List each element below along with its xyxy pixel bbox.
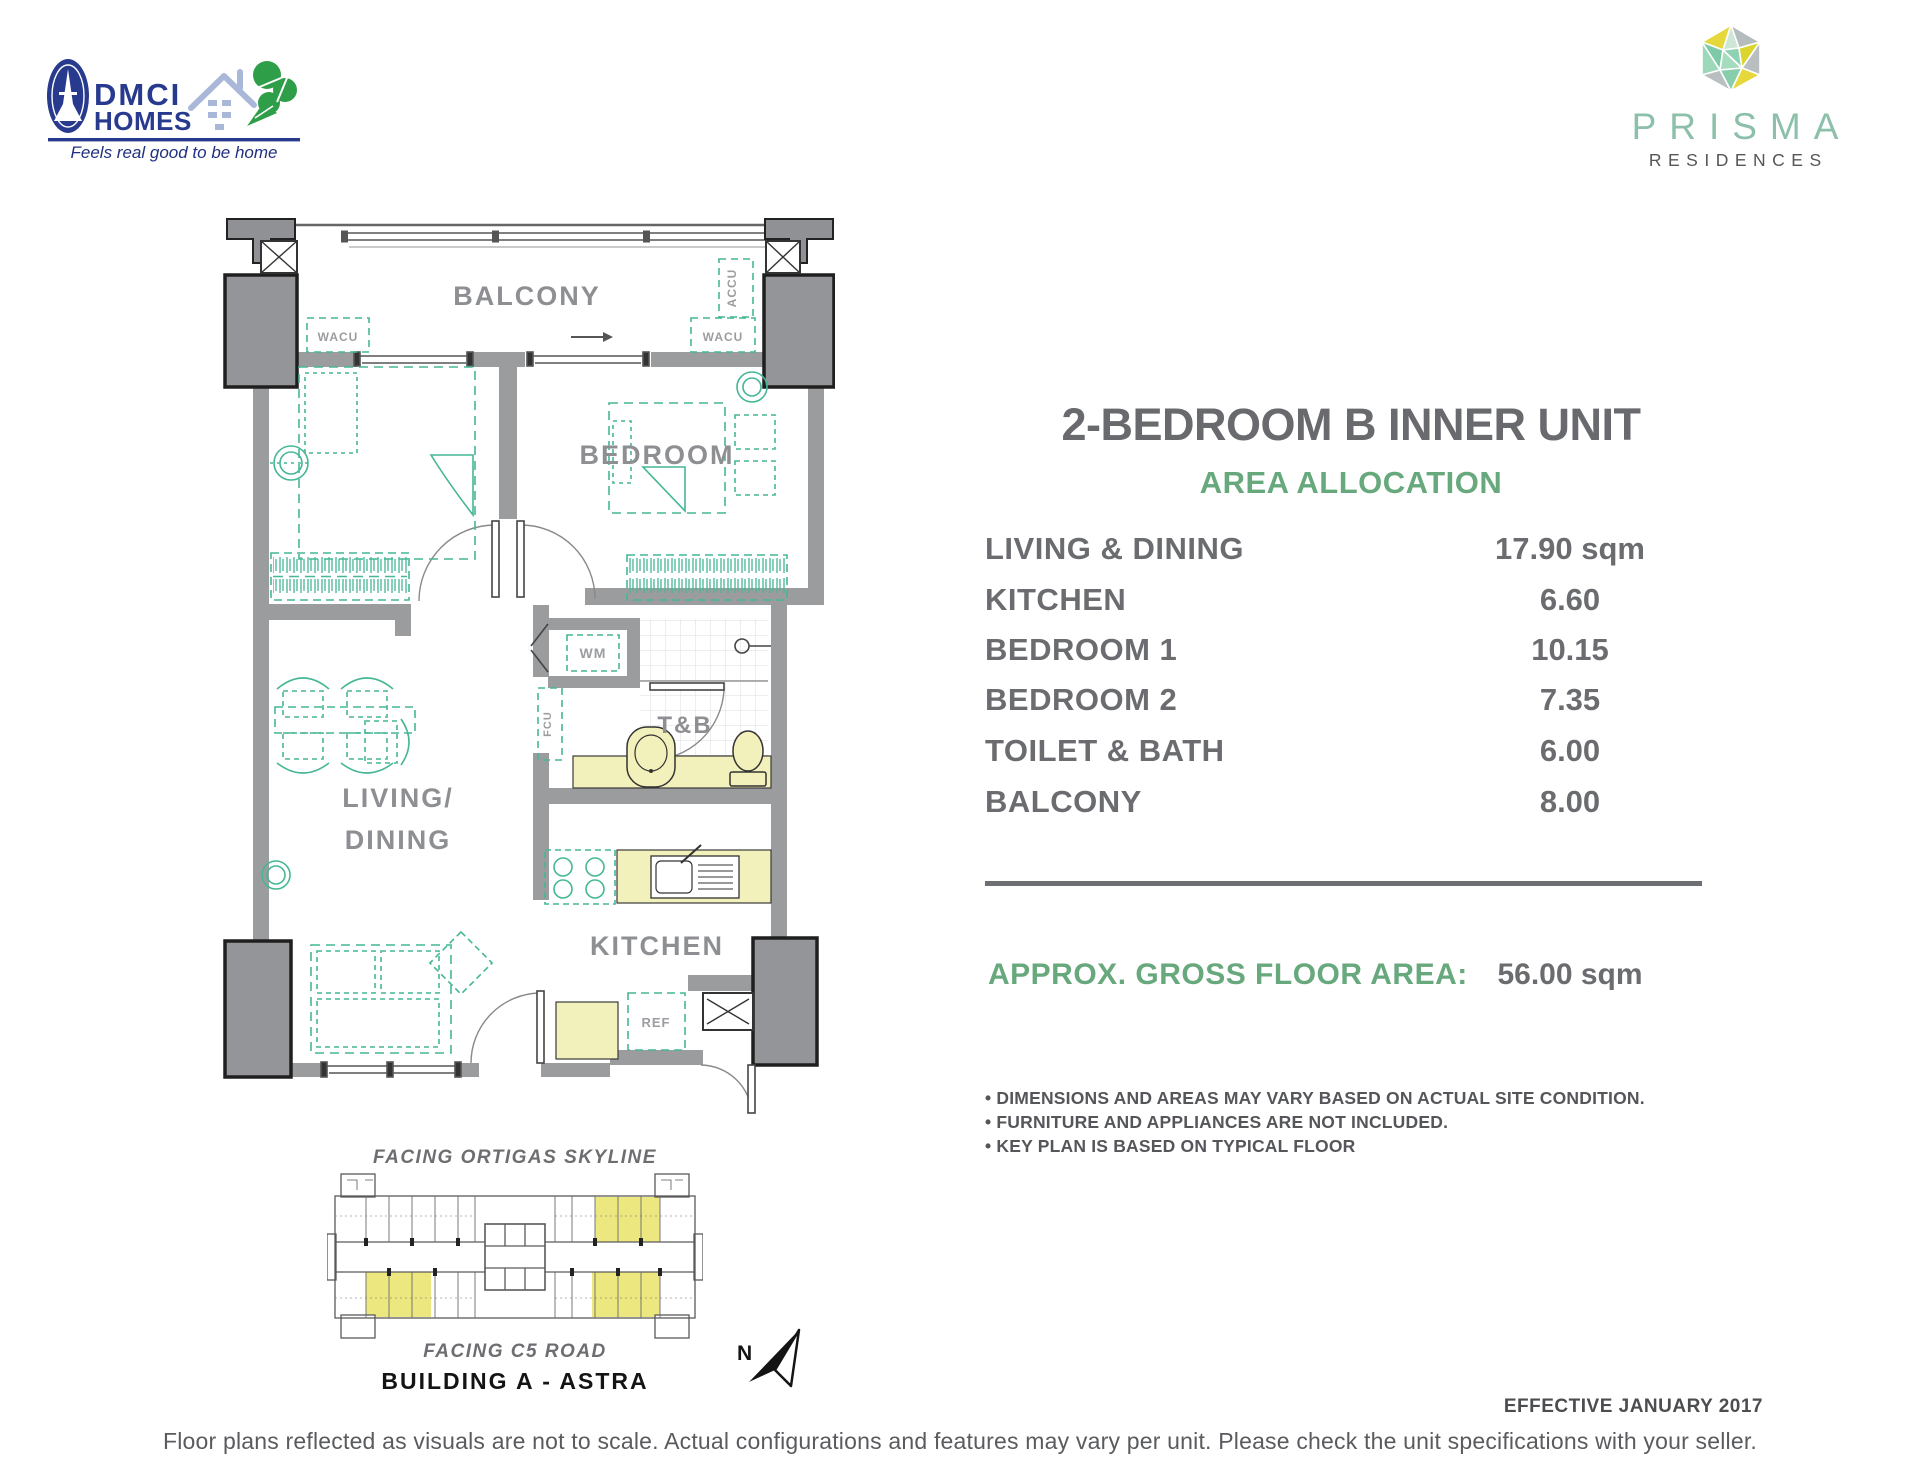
dmci-oval-emblem (47, 59, 89, 133)
slide-arrow-icon (571, 332, 613, 342)
tag-wm: WM (580, 645, 607, 661)
bullet: • (985, 1112, 991, 1132)
keyplan-drawing (327, 1172, 703, 1340)
area-row: BEDROOM 1 10.15 (985, 625, 1702, 675)
room-label-kitchen: KITCHEN (590, 931, 724, 961)
area-allocation-heading: AREA ALLOCATION (985, 465, 1717, 501)
note-item: • FURNITURE AND APPLIANCES ARE NOT INCLU… (985, 1110, 1725, 1134)
bullet: • (985, 1088, 991, 1108)
keyplan-facing-bottom: FACING C5 ROAD (327, 1341, 703, 1363)
balcony-railing (275, 225, 830, 247)
dmci-clover-icon (247, 61, 297, 126)
bullet: • (985, 1136, 991, 1156)
keyplan-building-name: BUILDING A - ASTRA (307, 1368, 723, 1395)
area-row: KITCHEN 6.60 (985, 575, 1702, 625)
area-row: BALCONY 8.00 (985, 777, 1702, 827)
tag-wacu-left: WACU (318, 330, 359, 344)
notes-list: • DIMENSIONS AND AREAS MAY VARY BASED ON… (985, 1086, 1725, 1158)
prisma-subtitle: RESIDENCES (1585, 150, 1885, 171)
gross-area-label: APPROX. GROSS FLOOR AREA: (988, 948, 1468, 1002)
area-row: BEDROOM 2 7.35 (985, 675, 1702, 725)
area-value: 7.35 (1440, 675, 1700, 725)
gross-floor-area-row: APPROX. GROSS FLOOR AREA: 56.00 sqm (985, 948, 1702, 1002)
tag-fcu: FCU (542, 711, 554, 737)
tag-accu: ACCU (725, 269, 739, 308)
keyplan-facing-top: FACING ORTIGAS SKYLINE (327, 1147, 703, 1169)
area-value: 6.60 (1440, 575, 1700, 625)
gross-area-value: 56.00 sqm (1440, 948, 1700, 1002)
flyer-page: DMCI HOMES Feels real good to be home (0, 0, 1920, 1484)
area-label: KITCHEN (985, 575, 1126, 625)
room-label-living: LIVING/ (342, 783, 454, 813)
area-label: BEDROOM 1 (985, 625, 1177, 675)
note-item: • DIMENSIONS AND AREAS MAY VARY BASED ON… (985, 1086, 1725, 1110)
floor-plan: BALCONY BEDROOM LIVING/ DINING T&B KITCH… (215, 215, 835, 1125)
tag-wacu-right: WACU (703, 330, 744, 344)
room-label-dining: DINING (345, 825, 452, 855)
dmci-tagline: Feels real good to be home (71, 143, 278, 162)
area-label: LIVING & DINING (985, 524, 1244, 574)
area-label: BALCONY (985, 777, 1142, 827)
area-row: LIVING & DINING 17.90 sqm (985, 524, 1702, 574)
panel-divider (985, 881, 1702, 886)
north-arrow-icon: N (735, 1322, 811, 1402)
note-text: DIMENSIONS AND AREAS MAY VARY BASED ON A… (996, 1088, 1644, 1108)
unit-title: 2-BEDROOM B INNER UNIT (985, 399, 1717, 451)
prisma-gem-icon (1698, 22, 1764, 98)
area-value: 17.90 sqm (1440, 524, 1700, 574)
tag-ref: REF (642, 1015, 671, 1030)
area-value: 10.15 (1440, 625, 1700, 675)
room-label-balcony: BALCONY (453, 281, 601, 311)
area-row: TOILET & BATH 6.00 (985, 726, 1702, 776)
note-text: FURNITURE AND APPLIANCES ARE NOT INCLUDE… (996, 1112, 1448, 1132)
footer-disclaimer: Floor plans reflected as visuals are not… (0, 1428, 1920, 1455)
effective-date: EFFECTIVE JANUARY 2017 (1504, 1396, 1763, 1418)
prisma-wordmark: PRISMA (1585, 106, 1885, 148)
dmci-homes-logo: DMCI HOMES Feels real good to be home (45, 52, 305, 167)
north-label: N (737, 1342, 752, 1365)
note-text: KEY PLAN IS BASED ON TYPICAL FLOOR (996, 1136, 1355, 1156)
area-value: 8.00 (1440, 777, 1700, 827)
dmci-wordmark-line2: HOMES (94, 106, 192, 136)
area-label: BEDROOM 2 (985, 675, 1177, 725)
area-label: TOILET & BATH (985, 726, 1225, 776)
room-label-bedroom: BEDROOM (580, 440, 735, 470)
dmci-house-icon (191, 72, 254, 130)
room-label-toilet-bath: T&B (657, 712, 712, 739)
area-value: 6.00 (1440, 726, 1700, 776)
note-item: • KEY PLAN IS BASED ON TYPICAL FLOOR (985, 1134, 1725, 1158)
dmci-rule (48, 138, 300, 141)
